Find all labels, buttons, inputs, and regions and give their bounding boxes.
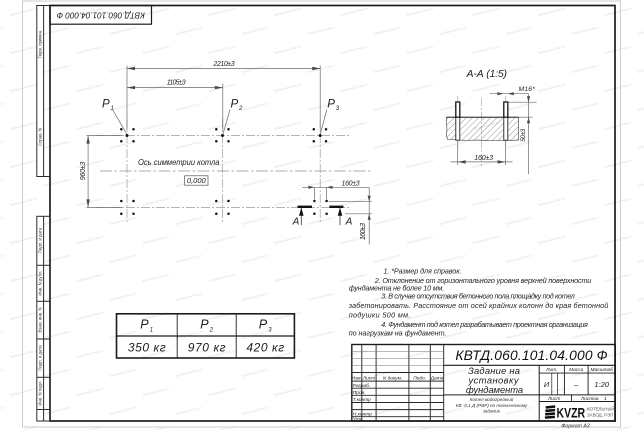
svg-text:Пров.: Пров. — [353, 390, 366, 396]
svg-text:Т.контр: Т.контр — [353, 397, 371, 403]
svg-text:2: 2 — [238, 106, 243, 112]
svg-text:И: И — [544, 380, 550, 389]
svg-text:Инв. N дубл.: Инв. N дубл. — [38, 270, 43, 295]
svg-text:2: 2 — [209, 328, 214, 334]
svg-text:P: P — [102, 98, 110, 110]
svg-text:P: P — [200, 318, 209, 332]
svg-text:KVZR: KVZR — [557, 405, 586, 421]
svg-text:А: А — [345, 217, 353, 228]
svg-text:А-А (1:5): А-А (1:5) — [466, 68, 508, 80]
svg-text:КВТД.060.101.04.000 Ф: КВТД.060.101.04.000 Ф — [56, 11, 145, 20]
svg-text:по нагрузкам на фундамент.: по нагрузкам на фундамент. — [349, 329, 447, 338]
svg-text:P: P — [327, 98, 335, 110]
svg-text:350 кг: 350 кг — [128, 340, 166, 354]
svg-text:960±3: 960±3 — [80, 162, 87, 181]
svg-text:Подп. и дата: Подп. и дата — [38, 345, 43, 371]
svg-text:задание: задание — [482, 408, 501, 413]
svg-text:Дата: Дата — [430, 376, 444, 382]
svg-text:Справ. N: Справ. N — [38, 128, 43, 146]
svg-text:Масштаб: Масштаб — [590, 367, 613, 373]
svg-text:Разраб.: Разраб. — [353, 383, 370, 389]
svg-text:3. В случае отсутствия бетонно: 3. В случае отсутствия бетонного пола пл… — [381, 292, 575, 301]
svg-text:забетонировать. Расстояние от: забетонировать. Расстояние от осей крайн… — [348, 301, 609, 310]
svg-text:ЗАВОД, РЭП: ЗАВОД, РЭП — [587, 413, 613, 418]
svg-text:50±3: 50±3 — [520, 128, 527, 141]
svg-text:Подп. и дата: Подп. и дата — [38, 227, 43, 253]
svg-text:Взам. инв. N: Взам. инв. N — [38, 307, 43, 332]
svg-text:Формат А3: Формат А3 — [561, 423, 589, 429]
svg-text:Лит.: Лит. — [545, 367, 557, 373]
svg-text:Подп.: Подп. — [413, 376, 426, 382]
svg-text:P: P — [140, 318, 149, 332]
svg-text:Утв.: Утв. — [353, 416, 364, 422]
svg-text:M16*: M16* — [518, 86, 535, 93]
svg-text:P: P — [231, 98, 239, 110]
svg-text:1:20: 1:20 — [594, 380, 609, 389]
svg-text:–: – — [573, 380, 579, 389]
svg-text:1: 1 — [604, 396, 607, 402]
svg-text:Изм.: Изм. — [352, 376, 362, 382]
svg-text:2210±3: 2210±3 — [212, 61, 234, 68]
svg-text:1105±3: 1105±3 — [167, 79, 186, 86]
svg-text:Лист: Лист — [547, 396, 560, 402]
svg-text:1: 1 — [150, 328, 153, 334]
svg-text:Инв. N подл.: Инв. N подл. — [38, 380, 43, 405]
svg-text:подушки 500 мм.: подушки 500 мм. — [349, 311, 411, 320]
svg-text:КВ -0,1 Д (РВР) по техническом: КВ -0,1 Д (РВР) по техническому — [456, 403, 528, 408]
svg-text:КВТД.060.101.04.000 Ф: КВТД.060.101.04.000 Ф — [455, 348, 607, 363]
svg-text:Перв. примен.: Перв. примен. — [38, 30, 43, 59]
svg-text:N докум.: N докум. — [383, 376, 402, 382]
svg-text:1. *Размер для справок.: 1. *Размер для справок. — [384, 267, 462, 276]
svg-text:P: P — [259, 318, 268, 332]
svg-text:Ось симметрии котла: Ось симметрии котла — [138, 158, 220, 167]
svg-text:Лист: Лист — [362, 376, 375, 382]
svg-text:160±3: 160±3 — [342, 180, 360, 187]
svg-text:160±3: 160±3 — [474, 155, 493, 162]
svg-text:Котел водогрейный: Котел водогрейный — [470, 396, 514, 402]
svg-text:420 кг: 420 кг — [246, 340, 284, 354]
svg-text:КОТЕЛЬНЫЙ: КОТЕЛЬНЫЙ — [587, 407, 615, 412]
svg-text:Масса: Масса — [569, 367, 584, 373]
svg-text:А: А — [292, 217, 300, 228]
svg-text:Листов: Листов — [580, 396, 599, 402]
svg-text:фундамента: фундамента — [466, 384, 523, 395]
svg-text:0,000: 0,000 — [187, 176, 207, 185]
svg-text:970 кг: 970 кг — [188, 340, 226, 354]
svg-text:160±3: 160±3 — [360, 223, 367, 240]
